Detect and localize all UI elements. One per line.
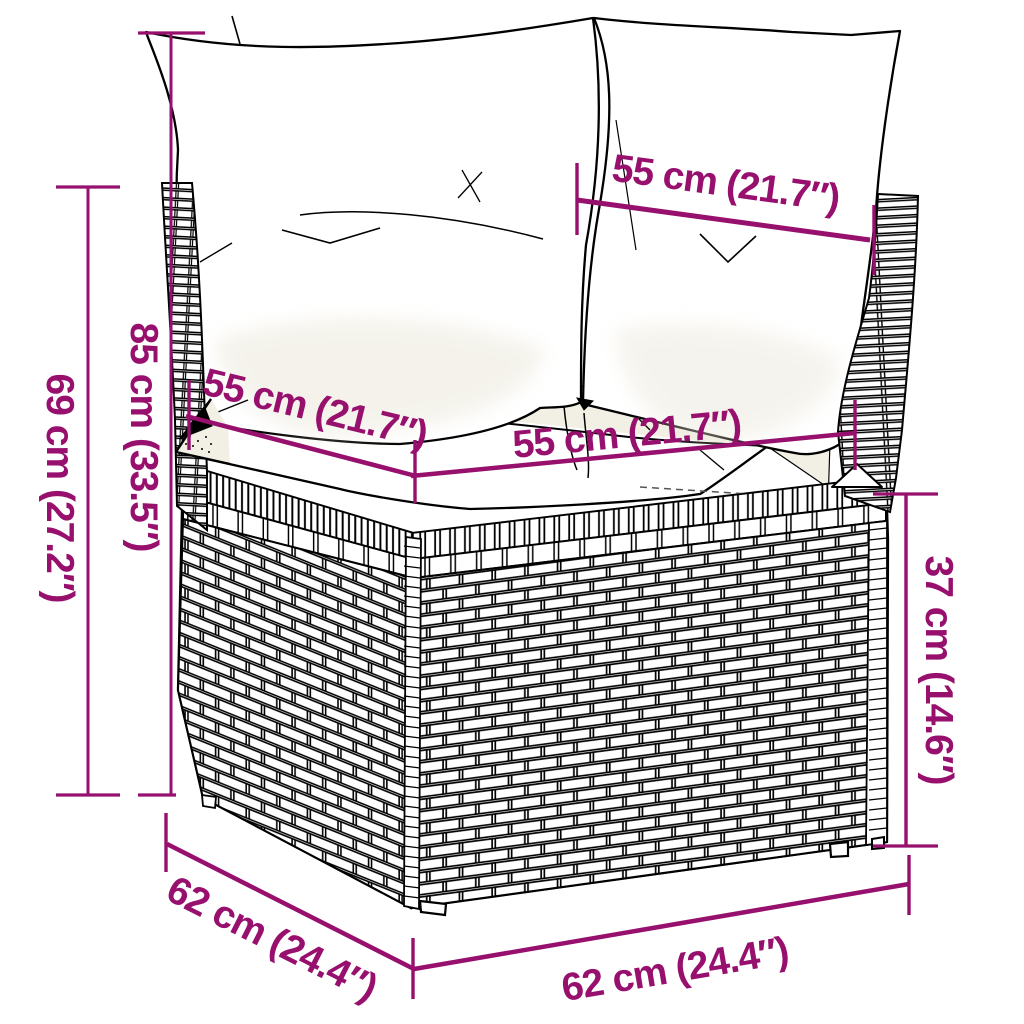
svg-text:69 cm (27.2″): 69 cm (27.2″): [38, 374, 81, 603]
svg-text:37 cm (14.6″): 37 cm (14.6″): [917, 556, 960, 785]
svg-text:85 cm (33.5″): 85 cm (33.5″): [122, 323, 165, 552]
